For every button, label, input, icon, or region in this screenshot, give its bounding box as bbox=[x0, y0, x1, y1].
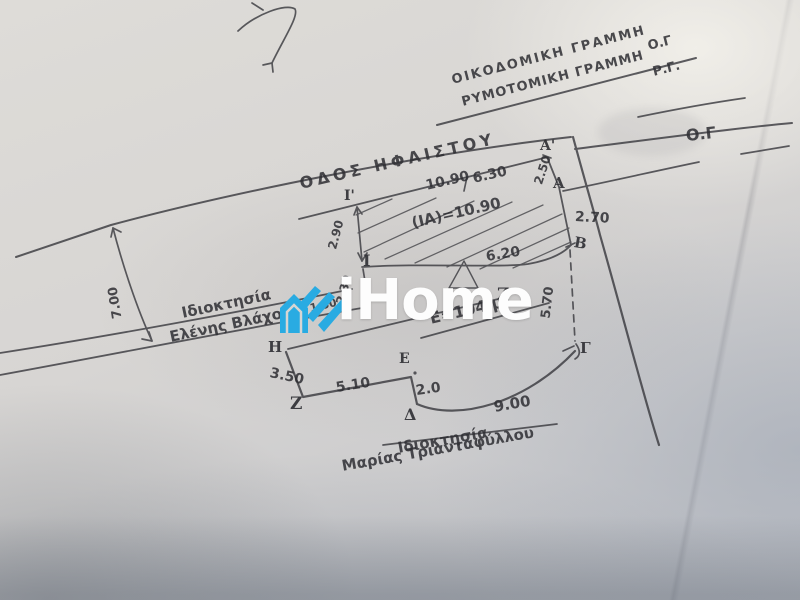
brand-name: iHome bbox=[337, 268, 533, 333]
point-zeta-bottom: Ζ bbox=[290, 396, 302, 413]
point-delta: Δ bbox=[404, 407, 416, 423]
street-line-right-upper bbox=[575, 123, 792, 149]
point-iota-prime: Ι' bbox=[344, 189, 355, 203]
east-boundary bbox=[573, 137, 659, 445]
ihome-watermark: iHome bbox=[277, 264, 487, 349]
dim-5-70: 5.70 bbox=[540, 286, 557, 319]
dimension-road-width bbox=[111, 228, 152, 341]
dashed-b-gamma bbox=[570, 250, 575, 341]
point-a: Α bbox=[553, 176, 565, 191]
building-line-fragment bbox=[638, 98, 745, 117]
og-right-underline bbox=[741, 146, 789, 154]
point-epsilon: Ε bbox=[399, 352, 410, 366]
gamma-mark bbox=[563, 344, 579, 359]
site-plan-photo: ΟΙΚΟΔΟΜΙΚΗ ΓΡΑΜΜΗ Ο.Γ ΡΥΜΟΤΟΜΙΚΗ ΓΡΑΜΜΗ … bbox=[0, 0, 800, 600]
signature-flourish bbox=[238, 3, 296, 72]
epsilon-dot bbox=[413, 371, 416, 374]
point-b: Β bbox=[573, 235, 588, 252]
og-right-label: Ο.Γ bbox=[685, 125, 716, 144]
point-a-prime: Α' bbox=[540, 139, 555, 153]
dim-2-70: 2.70 bbox=[575, 210, 610, 226]
dim-2-0: 2.0 bbox=[415, 381, 442, 398]
point-gamma: Γ bbox=[580, 341, 591, 356]
